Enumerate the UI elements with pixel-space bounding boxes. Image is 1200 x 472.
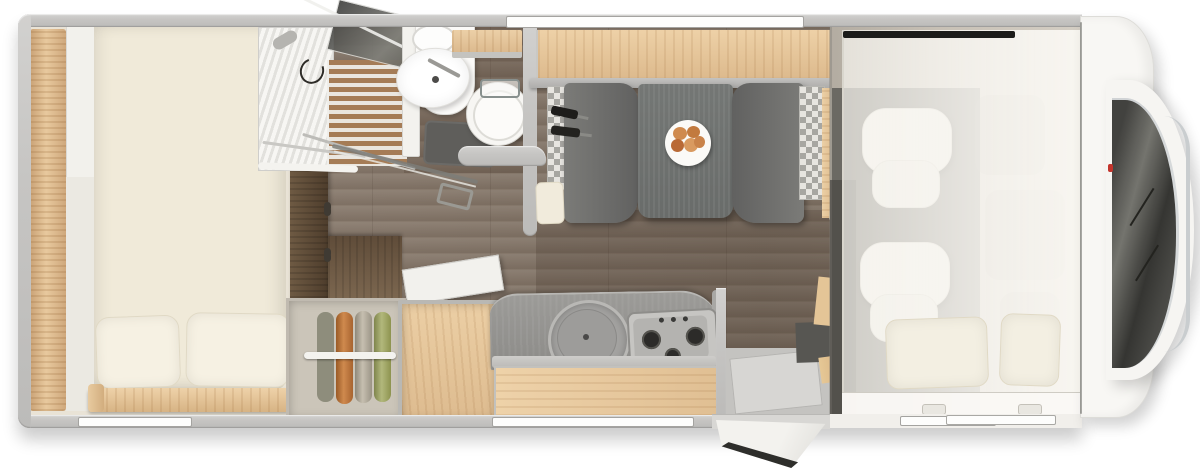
bathroom-shelf bbox=[452, 30, 522, 58]
wall-rear bbox=[18, 14, 31, 428]
overcab-black-strip bbox=[843, 31, 1015, 38]
fridge-cabinet bbox=[398, 300, 500, 424]
bread-roll bbox=[673, 127, 687, 140]
toilet-back-bracket bbox=[480, 79, 520, 98]
bedroom-cabinet-column bbox=[66, 27, 96, 177]
entry-side-wall bbox=[716, 288, 726, 416]
overcab-pillow bbox=[999, 313, 1061, 387]
bathroom-wall bbox=[523, 22, 537, 236]
bench-left-seat-base bbox=[535, 182, 564, 225]
cab-seam-line bbox=[829, 27, 832, 415]
kitchen-sink-knob bbox=[583, 334, 589, 340]
bed-pillow bbox=[185, 312, 290, 388]
hinge-mark bbox=[324, 202, 331, 216]
food-plate bbox=[665, 120, 711, 166]
bed-frame-rail bbox=[88, 388, 290, 412]
kitchen-drawer-front bbox=[494, 366, 720, 418]
windshield-trim bbox=[1164, 116, 1190, 352]
toilet-surround-wall bbox=[458, 146, 546, 166]
bed-handle-strip bbox=[946, 415, 1056, 425]
bench-left-backrest bbox=[564, 83, 638, 223]
walnut-cabinet-top bbox=[328, 236, 402, 300]
wardrobe-rail bbox=[304, 352, 396, 359]
overcab-pillow bbox=[885, 316, 989, 390]
bench-right-backrest bbox=[732, 83, 804, 223]
window-top-dinette bbox=[506, 16, 804, 28]
bedroom-cabinet-column-lower bbox=[66, 177, 95, 411]
faucet-knob bbox=[432, 76, 439, 83]
hinge-mark bbox=[324, 248, 331, 262]
brand-red-dot bbox=[1108, 164, 1113, 172]
window-bottom-kitchen bbox=[492, 417, 694, 427]
cab-body-seam bbox=[1080, 22, 1082, 414]
window-bottom-bedroom bbox=[78, 417, 192, 427]
shower-teak-grate bbox=[327, 60, 407, 166]
bed-rail-end-cap bbox=[88, 384, 104, 412]
bread-roll bbox=[694, 136, 705, 148]
rear-wood-trim bbox=[30, 29, 66, 411]
bread-roll bbox=[671, 139, 684, 152]
bed-pillow bbox=[95, 315, 181, 390]
floor-plan-scene bbox=[0, 0, 1200, 472]
dinette-sideboard bbox=[536, 30, 834, 80]
